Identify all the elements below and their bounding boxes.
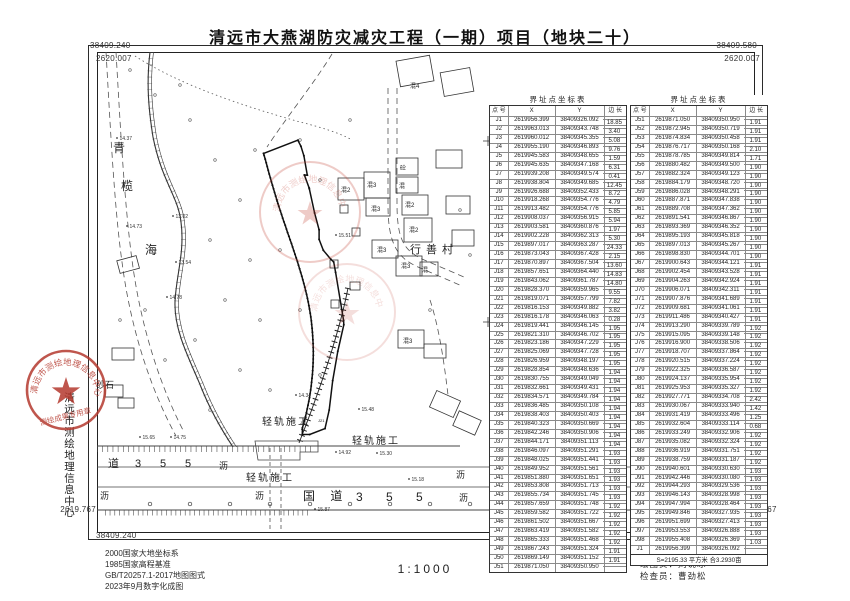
coordinate-value: 2619836.485: [509, 403, 556, 411]
coordinate-value: 38409350.168: [697, 144, 746, 152]
coordinate-value: 38409347.728: [556, 349, 605, 357]
coordinate-value: 2619851.880: [509, 475, 556, 483]
point-id: J97: [631, 528, 650, 536]
point-id: J11: [490, 206, 509, 214]
point-id: J54: [631, 144, 650, 152]
coordinate-value: 2619819.441: [509, 323, 556, 331]
note-line: 2000国家大地坐标系: [105, 548, 205, 559]
point-id: J13: [490, 224, 509, 232]
note-line: 2023年9月数字化成图: [105, 581, 205, 592]
edge-length-value: 1.90: [744, 200, 767, 209]
coordinate-value: 2619955.408: [650, 537, 697, 545]
coordinate-value: 38409348.655: [556, 153, 605, 161]
point-id: J4: [490, 144, 509, 152]
point-id: J52: [631, 126, 650, 134]
coordinate-value: 38409341.689: [697, 296, 746, 304]
coordinate-value: 2619816.178: [509, 314, 556, 322]
edge-length-value: 1.93: [744, 504, 767, 513]
point-id: J37: [490, 439, 509, 447]
point-id: J28: [490, 358, 509, 366]
elevation-dot: [376, 452, 378, 454]
coordinate-value: 38409343.528: [697, 269, 746, 277]
coordinate-value: 38409329.536: [697, 483, 746, 491]
elevation-label: 13.02: [176, 214, 189, 220]
edge-length-value: 9.76: [603, 147, 626, 156]
edge-length-value: 1.92: [744, 334, 767, 343]
map-label: 混: [399, 182, 405, 190]
edge-length-value: 1.92: [744, 451, 767, 460]
edge-length-value: 5.30: [603, 236, 626, 245]
coordinate-value: 2619951.699: [650, 519, 697, 527]
coordinate-value: 38409357.799: [556, 296, 605, 304]
point-id: J33: [490, 403, 509, 411]
coordinate-value: 38409350.669: [556, 421, 605, 429]
edge-length-value: 1.91: [744, 263, 767, 272]
map-label: 沥: [255, 491, 264, 501]
boundary-point-marker: [287, 232, 289, 234]
coordinate-value: 2619922.325: [650, 367, 697, 375]
area-summary: S=2195.33 平方米 合3.2930亩: [630, 555, 768, 566]
map-label: 沥: [100, 491, 109, 501]
edge-length-value: 1.91: [744, 129, 767, 138]
boundary-point-marker: [307, 301, 309, 303]
coordinate-value: 2619842.246: [509, 430, 556, 438]
point-id: J8: [490, 180, 509, 188]
point-id: J32: [490, 394, 509, 402]
boundary-point-marker: [306, 297, 308, 299]
coordinate-value: 2619940.601: [650, 466, 697, 474]
coordinate-value: 38409351.748: [556, 501, 605, 509]
map-label: 混2: [409, 226, 419, 234]
coordinate-value: 2619853.808: [509, 483, 556, 491]
edge-length-value: 1.90: [744, 218, 767, 227]
map-label: 混2: [405, 201, 415, 209]
coordinate-value: 38409341.061: [697, 305, 746, 313]
edge-length-value: 1.92: [603, 531, 626, 540]
boundary-point-marker: [333, 261, 335, 263]
coordinate-value: 38409351.667: [556, 519, 605, 527]
coordinate-value: 38409348.197: [556, 358, 605, 366]
boundary-point-marker: [268, 173, 270, 175]
coordinate-value: 2619916.900: [650, 340, 697, 348]
boundary-point-marker: [311, 331, 313, 333]
point-id: J23: [490, 314, 509, 322]
edge-length-value: 13.60: [603, 263, 626, 272]
point-id: J3: [490, 135, 509, 143]
point-id: J50: [490, 555, 509, 563]
coordinate-value: 2619830.755: [509, 376, 556, 384]
map-scale: 1:1000: [360, 562, 490, 576]
edge-length-column: 1.911.911.912.101.711.901.901.901.901.90…: [744, 119, 767, 549]
point-id: J78: [631, 358, 650, 366]
edge-length-value: 1.94: [603, 379, 626, 388]
boundary-point-marker: [324, 428, 326, 430]
map-sheet: 清远市大燕湖防灾减灾工程（一期）项目（地块二十） 38409.240 2620.…: [0, 0, 850, 601]
boundary-point-marker: [265, 162, 267, 164]
edge-length-value: 1.92: [744, 442, 767, 451]
coordinate-value: 2619900.643: [650, 260, 697, 268]
coordinate-value: 38409335.327: [697, 385, 746, 393]
coordinate-value: 2619960.012: [509, 135, 556, 143]
edge-length-value: 1.92: [603, 504, 626, 513]
coordinate-value: 38409354.776: [556, 206, 605, 214]
coordinate-value: 2619926.688: [509, 189, 556, 197]
edge-length-value: 7.82: [603, 299, 626, 308]
point-id: J14: [490, 233, 509, 241]
boundary-point-table-left: 界址点坐标表 点 号XY边 长J12619956.39938409326.092…: [489, 95, 627, 573]
edge-length-value: 1.93: [603, 486, 626, 495]
elevation-dot: [314, 508, 316, 510]
point-id: J89: [631, 457, 650, 465]
elevation-label: 15.87: [318, 507, 331, 513]
column-header: 点 号: [490, 106, 509, 116]
map-label: 青: [113, 141, 125, 155]
map-label: 3: [135, 458, 141, 470]
point-id: J71: [631, 296, 650, 304]
boundary-point-marker: [289, 239, 291, 241]
point-id: J70: [631, 287, 650, 295]
boundary-point-marker: [301, 433, 303, 435]
point-id: J43: [490, 492, 509, 500]
point-id: J92: [631, 483, 650, 491]
coordinate-value: 38409348.636: [556, 367, 605, 375]
coordinate-value: 2619840.323: [509, 421, 556, 429]
elevation-dot: [116, 137, 118, 139]
edge-length-value: 2.42: [744, 397, 767, 406]
boundary-point-marker: [312, 350, 314, 352]
coordinate-value: 2619843.062: [509, 278, 556, 286]
boundary-point-marker: [309, 312, 311, 314]
boundary-point-marker: [322, 249, 324, 251]
coordinate-value: 38409339.148: [697, 332, 746, 340]
coordinate-value: 38409359.965: [556, 287, 605, 295]
elevation-dot: [172, 215, 174, 217]
coordinate-value: 2619931.419: [650, 412, 697, 420]
map-label: 榄: [121, 179, 133, 193]
map-label: 混3: [371, 205, 381, 213]
point-id: J96: [631, 519, 650, 527]
edge-length-value: 1.95: [603, 326, 626, 335]
coordinate-value: 2619819.071: [509, 296, 556, 304]
boundary-point-marker: [318, 238, 320, 240]
coordinate-value: 2619944.293: [650, 483, 697, 491]
boundary-point-table-right: 界址点坐标表 点 号XY边 长J512619871.05038409350.95…: [630, 95, 768, 566]
boundary-point-marker: [306, 293, 308, 295]
coordinate-value: 38409351.152: [556, 555, 605, 563]
boundary-point-marker: [300, 145, 302, 147]
point-id: J48: [490, 537, 509, 545]
coordinate-value: 2619857.659: [509, 501, 556, 509]
elevation-label: 14.78: [170, 295, 183, 301]
coordinate-value: 38409351.651: [556, 475, 605, 483]
coordinate-value: 38409343.748: [556, 126, 605, 134]
edge-length-value: 1.91: [744, 272, 767, 281]
coordinate-value: 38409336.587: [697, 367, 746, 375]
coordinate-value: 2619871.050: [509, 564, 556, 572]
boundary-point-marker: [300, 271, 302, 273]
edge-length-value: 1.91: [744, 317, 767, 326]
point-id: J94: [631, 501, 650, 509]
coordinate-value: 38409356.915: [556, 215, 605, 223]
edge-length-value: 1.59: [603, 156, 626, 165]
boundary-point-marker: [302, 279, 304, 281]
boundary-point-marker: [263, 154, 265, 156]
point-id: J27: [490, 349, 509, 357]
coordinate-value: 38409346.893: [556, 144, 605, 152]
coordinate-value: 38409354.776: [556, 197, 605, 205]
boundary-point-marker: [284, 224, 286, 226]
coordinate-value: 2619963.013: [509, 126, 556, 134]
edge-length-value: 1.91: [744, 119, 767, 129]
elevation-label: 15.65: [143, 435, 156, 441]
edge-length-value: 1.92: [744, 379, 767, 388]
coordinate-value: 38409344.701: [697, 251, 746, 259]
coordinate-value: 38409350.950: [697, 117, 746, 125]
edge-length-value: 1.92: [744, 326, 767, 335]
point-id: J21: [490, 296, 509, 304]
coordinate-value: 2619865.333: [509, 537, 556, 545]
boundary-point-marker: [297, 139, 299, 141]
edge-length-value: 1.90: [744, 174, 767, 183]
edge-length-value: 1.97: [603, 227, 626, 236]
map-label: 沥: [456, 470, 465, 480]
edge-length-value: 1.92: [744, 460, 767, 469]
coordinate-value: 38409340.427: [697, 314, 746, 322]
coordinate-value: 38409347.168: [556, 162, 605, 170]
coordinate-value: 2619897.013: [650, 242, 697, 250]
boundary-point-marker: [285, 228, 287, 230]
coordinate-value: 2619933.249: [650, 430, 697, 438]
coordinate-value: 2619886.028: [650, 189, 697, 197]
point-id: J22: [490, 305, 509, 313]
coordinate-value: 2619826.959: [509, 358, 556, 366]
coordinate-value: 38409327.413: [697, 519, 746, 527]
point-id: J41: [490, 475, 509, 483]
coordinate-value: 2619935.082: [650, 439, 697, 447]
point-id: J83: [631, 403, 650, 411]
coordinate-value: 2619925.953: [650, 385, 697, 393]
boundary-point-marker: [312, 358, 314, 360]
elevation-label: 15.51: [339, 233, 352, 239]
map-label: 沥: [219, 461, 228, 471]
point-id: J91: [631, 475, 650, 483]
boundary-point-marker: [308, 400, 310, 402]
edge-length-value: 1.92: [744, 343, 767, 352]
edge-length-value: 1.95: [603, 334, 626, 343]
coordinate-value: 2619915.095: [650, 332, 697, 340]
coordinate-value: 2619882.324: [650, 171, 697, 179]
coordinate-value: 2619870.897: [509, 260, 556, 268]
map-label: 道: [108, 456, 119, 470]
edge-length-value: 1.94: [603, 406, 626, 415]
coordinate-value: 38409349.431: [556, 385, 605, 393]
coordinate-value: 2619939.208: [509, 171, 556, 179]
coordinate-value: 38409349.685: [556, 180, 605, 188]
point-id: J67: [631, 260, 650, 268]
coordinate-value: 2619855.734: [509, 492, 556, 500]
point-id: J30: [490, 376, 509, 384]
coordinate-value: 38409352.433: [556, 189, 605, 197]
coordinate-value: 38409349.049: [556, 376, 605, 384]
edge-length-value: 1.92: [744, 370, 767, 379]
edge-length-value: 1.93: [744, 469, 767, 478]
edge-length-value: 1.95: [603, 343, 626, 352]
coordinate-value: 38409334.708: [697, 394, 746, 402]
coordinate-value: 38409351.582: [556, 528, 605, 536]
edge-length-value: 4.79: [603, 200, 626, 209]
coordinate-value: 2619893.369: [650, 224, 697, 232]
coordinate-value: 2619876.717: [650, 144, 697, 152]
coordinate-value: 38409330.080: [697, 475, 746, 483]
point-id: J81: [631, 385, 650, 393]
edge-length-value: 1.93: [744, 477, 767, 486]
boundary-point-marker: [290, 242, 292, 244]
point-id: J84: [631, 412, 650, 420]
coordinate-value: 38409348.291: [697, 189, 746, 197]
coordinate-value: 38409363.287: [556, 242, 605, 250]
column-header: X: [509, 106, 556, 116]
point-id: J87: [631, 439, 650, 447]
elevation-dot: [358, 408, 360, 410]
corner-coord-top-left-x: 38409.240: [90, 41, 131, 50]
map-label: 砼: [400, 164, 406, 172]
map-label: 5: [160, 458, 166, 470]
point-id: J79: [631, 367, 650, 375]
coordinate-value: 38409351.113: [556, 439, 605, 447]
point-id: J36: [490, 430, 509, 438]
boundary-point-marker: [266, 166, 268, 168]
coordinate-value: 2619904.263: [650, 278, 697, 286]
edge-length-value: 1.95: [603, 352, 626, 361]
coordinate-value: 38409350.719: [697, 126, 746, 134]
boundary-point-marker: [310, 389, 312, 391]
point-id: J34: [490, 412, 509, 420]
svg-text:清远市测绘地理信息中心: 清远市测绘地理信息中心: [97, 52, 349, 212]
point-id: J72: [631, 305, 650, 313]
edge-length-value: 1.93: [744, 531, 767, 540]
coordinate-value: 2619871.050: [650, 117, 697, 125]
boundary-point-marker: [312, 362, 314, 364]
coordinate-value: 38409326.888: [697, 528, 746, 536]
seal-star-icon: [52, 377, 81, 404]
table-title: 界址点坐标表: [630, 95, 768, 105]
point-id: J29: [490, 367, 509, 375]
coordinate-value: 2619873.043: [509, 251, 556, 259]
boundary-point-marker: [312, 335, 314, 337]
column-header: 边 长: [605, 106, 627, 116]
coordinate-value: 2619895.193: [650, 233, 697, 241]
boundary-point-marker: [273, 188, 275, 190]
coordinate-value: 38409347.229: [556, 340, 605, 348]
edge-length-value: 1.92: [603, 522, 626, 531]
edge-length-value: 1.90: [744, 209, 767, 218]
edge-length-value: 1.91: [603, 549, 626, 558]
coordinate-value: 2619891.541: [650, 215, 697, 223]
coordinate-value: 38409364.440: [556, 269, 605, 277]
point-id: J1: [490, 117, 509, 125]
point-id: J90: [631, 466, 650, 474]
coordinate-value: 2619913.290: [650, 323, 697, 331]
point-id: J76: [631, 340, 650, 348]
map-label: 混3: [403, 337, 413, 345]
coordinate-value: 2619909.681: [650, 305, 697, 313]
coordinate-value: 2619880.482: [650, 162, 697, 170]
coordinate-value: 38409346.063: [556, 314, 605, 322]
coordinate-value: 2619859.582: [509, 510, 556, 518]
boundary-point-marker: [288, 235, 290, 237]
coordinate-value: 2619927.771: [650, 394, 697, 402]
edge-length-value: 1.92: [603, 540, 626, 549]
corner-coord-top-right-x: 38409.580: [697, 41, 757, 50]
boundary-point-marker: [311, 374, 313, 376]
boundary-point-marker: [310, 385, 312, 387]
point-id: J53: [631, 135, 650, 143]
coordinate-value: 38409349.500: [697, 162, 746, 170]
point-id: J1: [631, 546, 650, 554]
point-id: J16: [490, 251, 509, 259]
point-id: J80: [631, 376, 650, 384]
coordinate-value: 2619955.190: [509, 144, 556, 152]
elevation-label: 15.30: [380, 451, 393, 457]
point-id: J18: [490, 269, 509, 277]
boundary-point-marker: [306, 408, 308, 410]
coordinate-value: 38409327.935: [697, 510, 746, 518]
coordinate-value: 38409335.954: [697, 376, 746, 384]
edge-length-value: 5.85: [603, 209, 626, 218]
edge-length-value: 1.90: [744, 183, 767, 192]
boundary-point-marker: [305, 412, 307, 414]
coordinate-value: 38409333.114: [697, 421, 746, 429]
point-id: J35: [490, 421, 509, 429]
point-id: J31: [490, 385, 509, 393]
coordinate-value: 2619930.067: [650, 403, 697, 411]
coordinate-value: 2619867.243: [509, 546, 556, 554]
map-notes: 2000国家大地坐标系 1985国家高程基准 GB/T20257.1-2017地…: [105, 548, 205, 592]
map-label: J21: [318, 418, 325, 423]
coordinate-value: 2619897.017: [509, 242, 556, 250]
map-label: 沥: [459, 493, 468, 503]
coordinate-value: 38409351.468: [556, 537, 605, 545]
edge-length-value: 1.93: [603, 495, 626, 504]
coordinate-value: 2619816.153: [509, 305, 556, 313]
coordinate-value: 2619902.454: [650, 269, 697, 277]
coordinate-value: 38409331.751: [697, 448, 746, 456]
edge-length-value: 1.90: [744, 245, 767, 254]
point-id: J17: [490, 260, 509, 268]
edge-length-value: 1.91: [744, 281, 767, 290]
edge-length-value: 1.91: [744, 308, 767, 317]
point-id: J40: [490, 466, 509, 474]
coordinate-value: 2619942.446: [650, 475, 697, 483]
coordinate-value: 38409347.838: [697, 197, 746, 205]
coordinate-value: 38409361.787: [556, 278, 605, 286]
coordinate-value: 38409351.291: [556, 448, 605, 456]
point-id: J19: [490, 278, 509, 286]
coordinate-value: 38409328.464: [697, 501, 746, 509]
coordinate-value: 2619902.228: [509, 233, 556, 241]
coordinate-value: 38409337.224: [697, 358, 746, 366]
edge-length-value: 1.94: [603, 442, 626, 451]
edge-length-value: 1.42: [744, 406, 767, 415]
boundary-point-marker: [311, 327, 313, 329]
coordinate-value: 38409362.313: [556, 233, 605, 241]
coordinate-value: 2619869.149: [509, 555, 556, 563]
map-label: 混: [422, 266, 428, 274]
map-label: 轻轨施工: [352, 434, 400, 447]
coordinate-value: 2619863.419: [509, 528, 556, 536]
coordinate-value: 38409351.722: [556, 510, 605, 518]
boundary-point-marker: [293, 250, 295, 252]
